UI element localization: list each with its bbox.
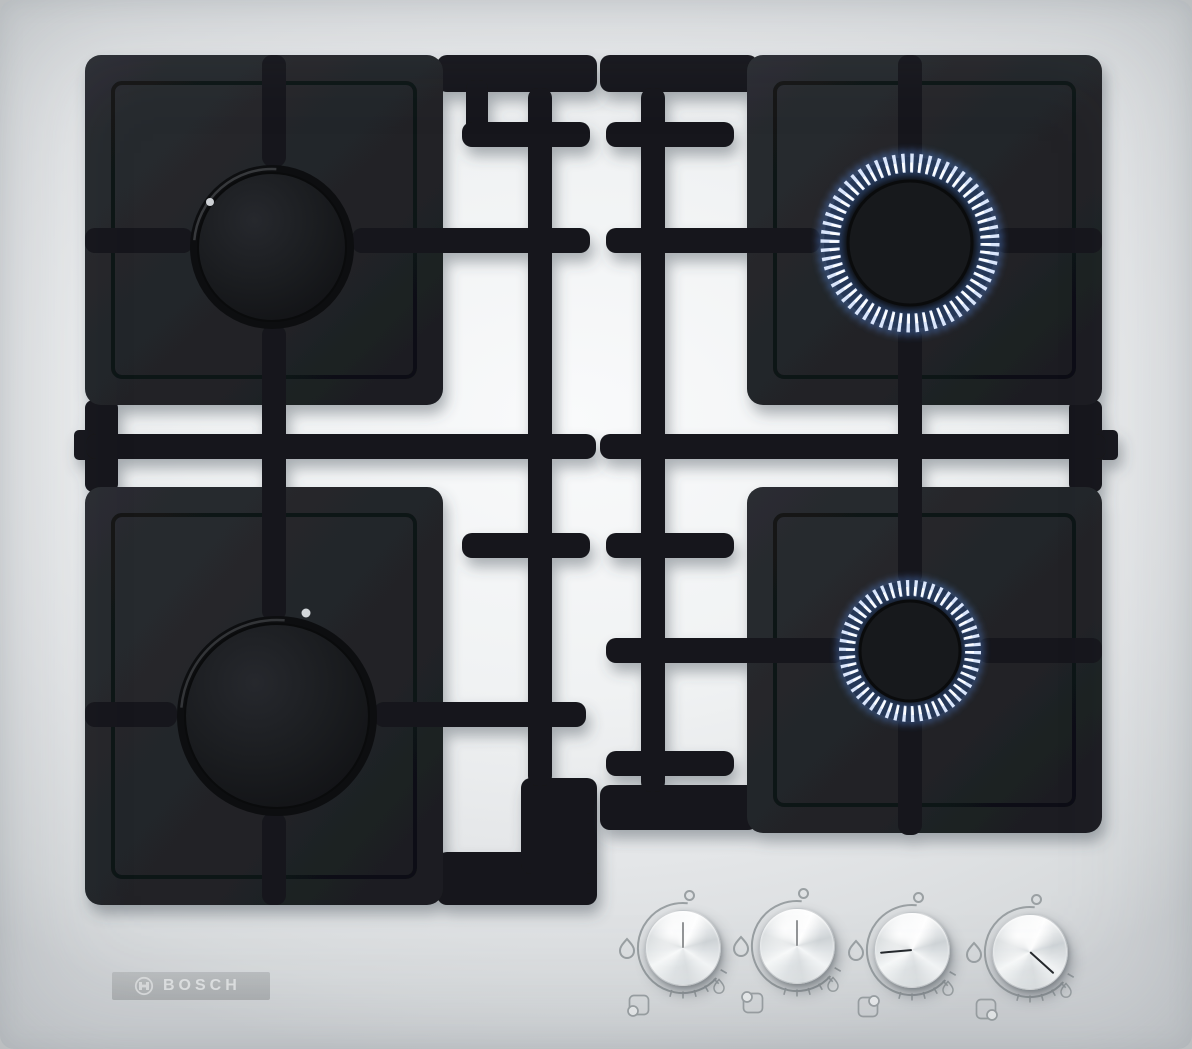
burner-front-right: [840, 581, 980, 721]
rim-highlight-dot: [302, 609, 311, 618]
flame-high-icon: [967, 943, 981, 962]
knob-pointer: [880, 949, 912, 954]
flame-high-icon: [849, 941, 863, 960]
off-position-circle: [914, 893, 923, 902]
flame-high-icon: [620, 939, 634, 958]
rim-highlight-dot: [206, 198, 214, 206]
hob-position-front-right-icon: [973, 996, 999, 1022]
pan-support-right: [600, 55, 1118, 835]
knob-pointer: [1029, 951, 1054, 974]
gas-hob-photo: BOSCH: [0, 0, 1192, 1049]
knob-front-right[interactable]: [992, 914, 1068, 990]
burner-back-right: [824, 157, 996, 329]
bosch-logo-badge: BOSCH: [112, 972, 270, 1000]
knob-pointer: [796, 920, 798, 946]
flame-high-icon: [734, 937, 748, 956]
knob-back-left[interactable]: [759, 908, 835, 984]
knob-pointer: [682, 922, 684, 948]
hob-position-back-right-icon: [855, 994, 881, 1020]
off-position-circle: [685, 891, 694, 900]
off-position-circle: [799, 889, 808, 898]
hob-position-front-left-icon: [626, 992, 652, 1018]
off-position-circle: [1032, 895, 1041, 904]
bosch-armature-icon: [134, 976, 154, 996]
knob-front-left[interactable]: [645, 910, 721, 986]
brand-name: BOSCH: [163, 978, 241, 994]
hob-position-back-left-icon: [740, 990, 766, 1016]
knob-back-right[interactable]: [874, 912, 950, 988]
